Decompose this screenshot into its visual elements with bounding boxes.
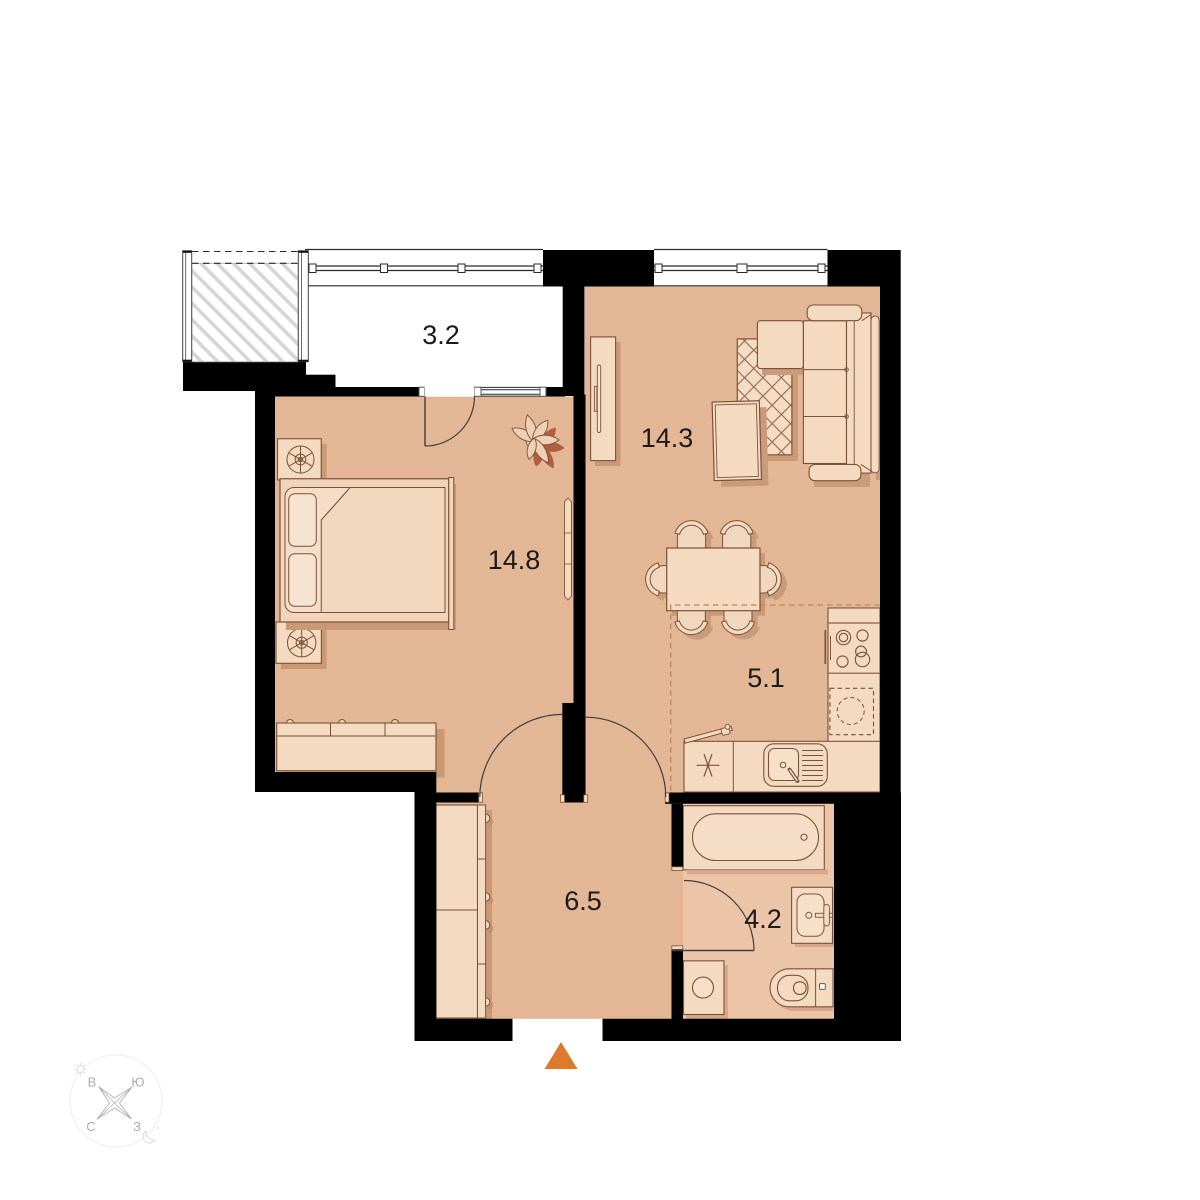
svg-text:С: С — [86, 1119, 95, 1134]
svg-text:14.8: 14.8 — [488, 545, 541, 575]
svg-text:5.1: 5.1 — [747, 663, 785, 693]
svg-text:В: В — [88, 1075, 97, 1090]
svg-text:14.3: 14.3 — [641, 423, 694, 453]
svg-text:Ю: Ю — [131, 1075, 144, 1090]
svg-text:6.5: 6.5 — [564, 886, 602, 916]
svg-text:З: З — [133, 1119, 141, 1134]
svg-text:4.2: 4.2 — [744, 904, 782, 934]
svg-text:3.2: 3.2 — [422, 320, 460, 350]
